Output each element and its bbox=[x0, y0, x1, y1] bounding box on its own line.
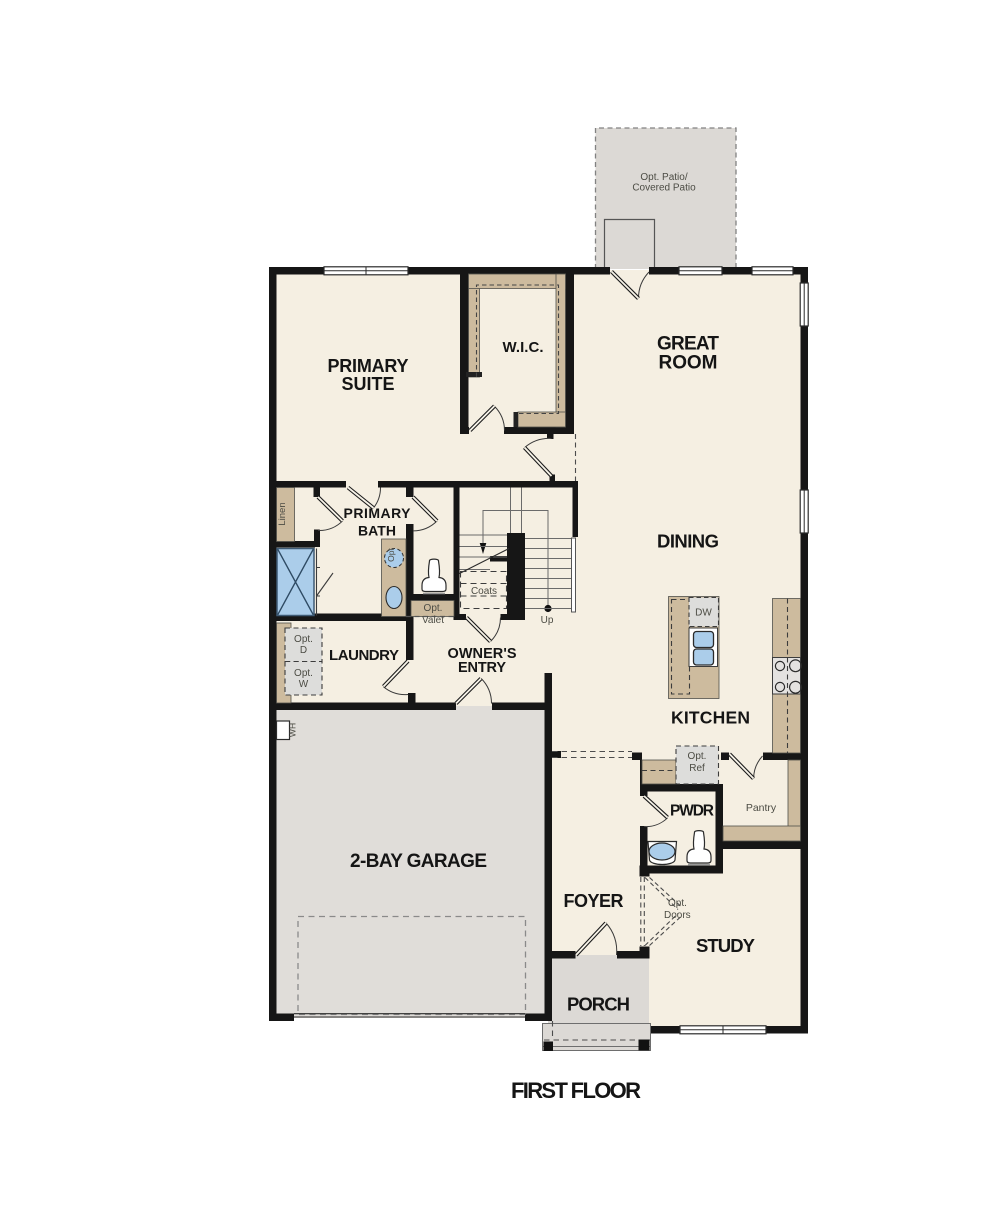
svg-text:BATH: BATH bbox=[358, 523, 396, 539]
svg-text:D: D bbox=[300, 645, 307, 656]
svg-text:PRIMARY: PRIMARY bbox=[344, 505, 412, 521]
svg-text:W: W bbox=[299, 679, 309, 690]
svg-text:ROOM: ROOM bbox=[659, 353, 718, 374]
svg-text:PORCH: PORCH bbox=[567, 994, 630, 1015]
svg-text:Linen: Linen bbox=[277, 502, 288, 525]
svg-text:Pantry: Pantry bbox=[746, 802, 777, 814]
svg-text:Opt.: Opt. bbox=[424, 603, 443, 614]
svg-text:Covered Patio: Covered Patio bbox=[632, 183, 696, 194]
svg-text:DINING: DINING bbox=[657, 531, 719, 552]
svg-text:Opt.: Opt. bbox=[668, 898, 687, 909]
svg-text:Opt: Opt bbox=[386, 548, 396, 562]
svg-text:Opt.: Opt. bbox=[294, 668, 313, 679]
svg-text:Doors: Doors bbox=[664, 910, 691, 921]
svg-text:Opt. Patio/: Opt. Patio/ bbox=[640, 172, 687, 183]
svg-text:Opt.: Opt. bbox=[294, 634, 313, 645]
svg-text:Up: Up bbox=[541, 615, 554, 626]
svg-text:PRIMARY: PRIMARY bbox=[328, 356, 409, 376]
svg-text:LAUNDRY: LAUNDRY bbox=[329, 647, 399, 664]
svg-text:W.I.C.: W.I.C. bbox=[503, 339, 544, 356]
svg-text:2-BAY GARAGE: 2-BAY GARAGE bbox=[350, 851, 487, 872]
svg-text:FIRST FLOOR: FIRST FLOOR bbox=[511, 1078, 641, 1103]
svg-text:Opt.: Opt. bbox=[688, 751, 707, 762]
svg-text:Coats: Coats bbox=[471, 586, 497, 597]
svg-text:GREAT: GREAT bbox=[657, 334, 719, 355]
svg-text:Valet: Valet bbox=[422, 615, 444, 626]
svg-text:FOYER: FOYER bbox=[564, 891, 624, 911]
svg-text:STUDY: STUDY bbox=[696, 935, 756, 956]
svg-text:Ref: Ref bbox=[689, 763, 705, 774]
svg-text:SUITE: SUITE bbox=[342, 374, 395, 394]
svg-text:DW: DW bbox=[695, 608, 712, 619]
svg-text:ENTRY: ENTRY bbox=[458, 660, 506, 676]
svg-text:PWDR: PWDR bbox=[670, 803, 714, 820]
svg-text:KITCHEN: KITCHEN bbox=[671, 708, 750, 728]
svg-text:WH: WH bbox=[288, 723, 298, 737]
